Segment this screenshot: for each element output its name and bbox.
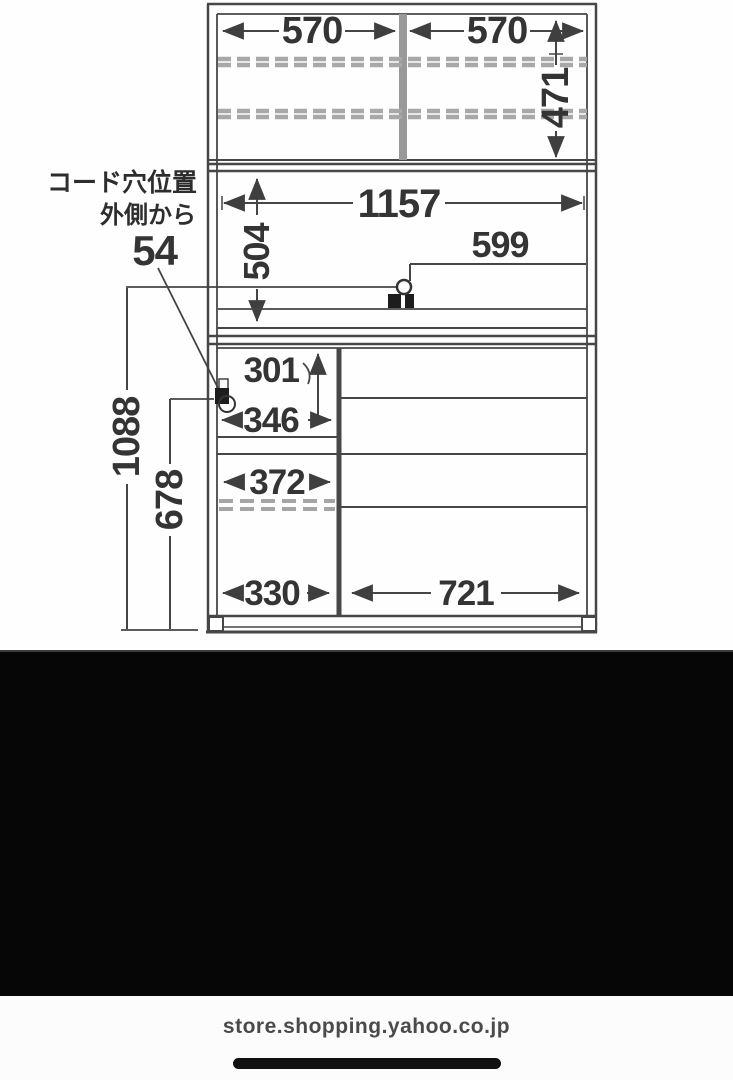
dim-left-bottom-width: 330 [244, 574, 300, 613]
dim-upper-inner-height: 471 [535, 67, 577, 128]
home-indicator[interactable] [233, 1058, 501, 1069]
right-foot [582, 617, 596, 631]
lower-cord-hole [215, 379, 235, 412]
browser-footer: store.shopping.yahoo.co.jp [0, 996, 733, 1080]
dim-middle-inner-height: 504 [236, 222, 277, 280]
cord-hole-note-title: コード穴位置 [47, 168, 197, 197]
counter-cord-hole [388, 280, 414, 308]
dim-niche-height: 301 [244, 351, 300, 390]
dim-cord-hole-height-lower: 678 [149, 470, 191, 530]
dim-right-bottom-width: 721 [438, 574, 494, 613]
cord-hole-note-subtitle: 外側から [100, 201, 196, 229]
dim-left-shelf-width: 372 [249, 463, 305, 502]
counter-cord-hole-grommet-icon [397, 280, 411, 294]
site-url[interactable]: store.shopping.yahoo.co.jp [223, 1015, 510, 1039]
dim-counter-shelf-width: 599 [471, 224, 528, 265]
lower-shelf-dashed-line [219, 501, 335, 509]
left-foot [209, 617, 223, 631]
dim-niche-width: 346 [243, 401, 299, 440]
cord-hole-note-value: 54 [132, 227, 178, 274]
dim-middle-inner-width: 1157 [358, 182, 441, 226]
dim-cord-hole-height-upper: 1088 [106, 397, 148, 478]
dim-upper-left-width: 570 [282, 10, 342, 52]
blacked-out-region [0, 650, 733, 996]
upper-center-divider [399, 14, 407, 160]
screenshot-root: 570 570 471 1157 504 599 301 346 372 330… [0, 0, 733, 1080]
furniture-dimension-diagram: 570 570 471 1157 504 599 301 346 372 330… [0, 0, 733, 650]
dimension-diagram-svg: 570 570 471 1157 504 599 301 346 372 330… [0, 0, 733, 650]
dim-upper-right-width: 570 [467, 10, 527, 52]
